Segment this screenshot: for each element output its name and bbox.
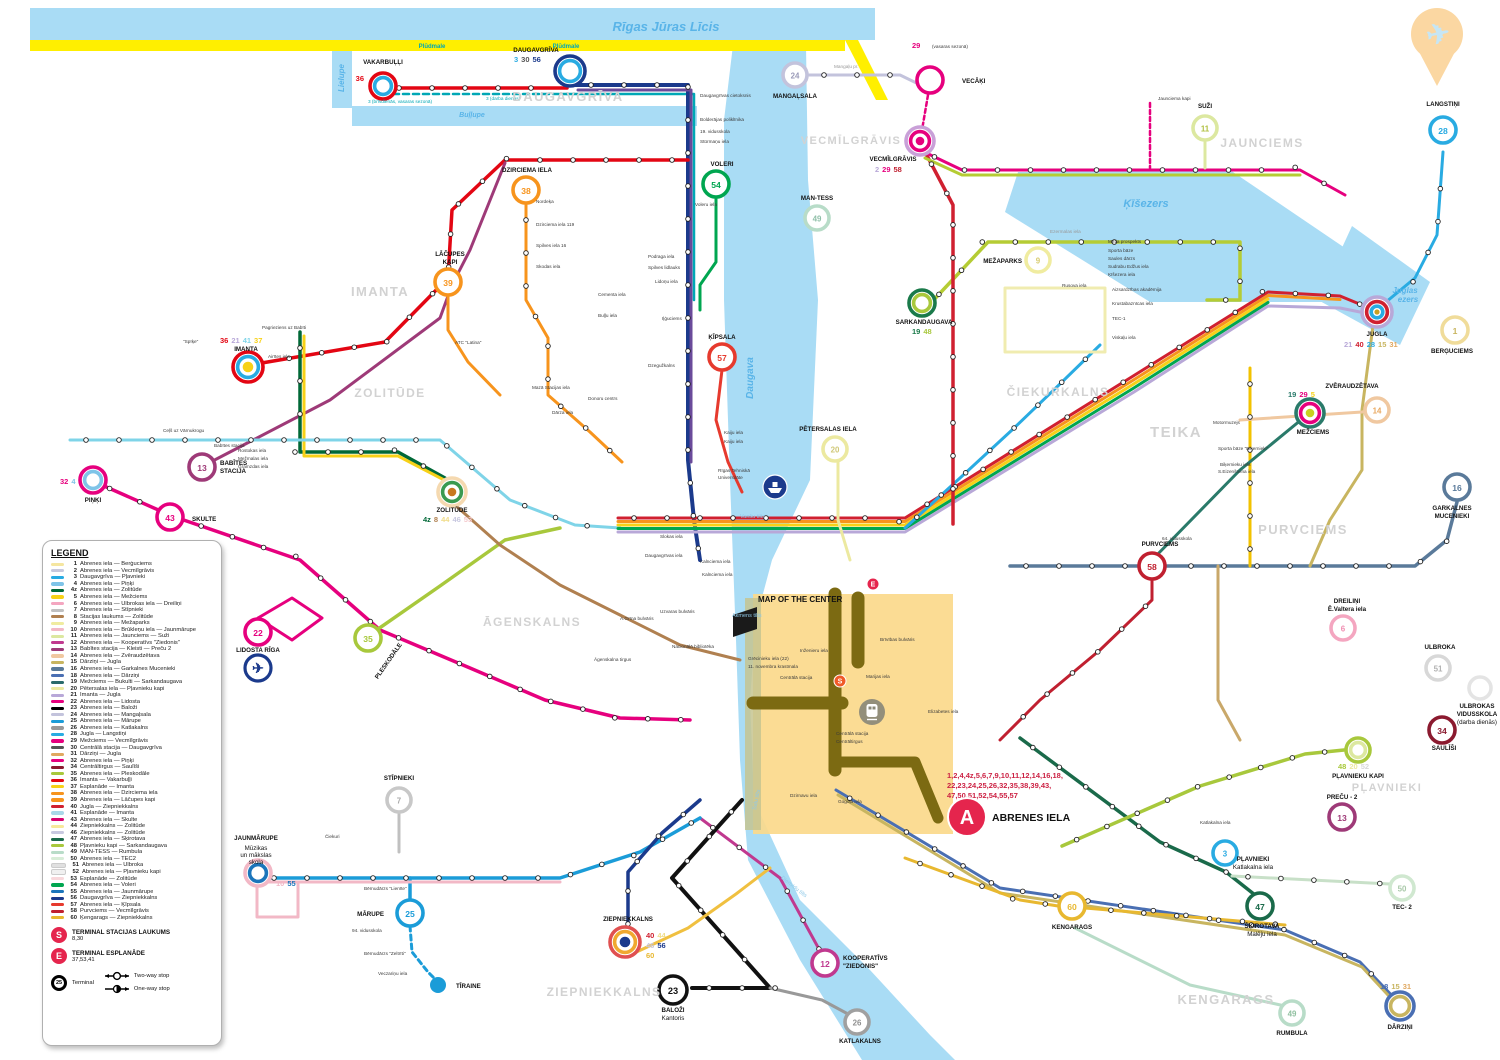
- route-number: 22: [67, 699, 77, 705]
- street-label: Podraga iela: [648, 254, 675, 259]
- terminal-route-numbers: 181531: [1380, 982, 1411, 991]
- stop-dot: [681, 812, 686, 817]
- route-color-swatch: [51, 694, 64, 697]
- route-color-swatch: [51, 916, 64, 919]
- route-line: [448, 296, 500, 395]
- stop-dot: [496, 86, 501, 91]
- stop-dot: [1012, 426, 1017, 431]
- train-station-icon: [859, 699, 885, 725]
- terminal-man-tess: 49MAN-TESS: [801, 195, 833, 230]
- stop-dot: [559, 404, 564, 409]
- stop-key-one-way: One-way stop: [104, 984, 170, 994]
- stop-dot: [1031, 745, 1036, 750]
- route-color-swatch: [51, 805, 64, 808]
- street-label: Āgenskalna tirgus: [594, 656, 632, 662]
- stop-dot: [546, 344, 551, 349]
- stop-dot: [1326, 293, 1331, 298]
- route-line: [700, 198, 716, 310]
- route-line: [905, 345, 1100, 528]
- stop-dot: [524, 218, 529, 223]
- route-number: 53: [67, 876, 77, 882]
- stop-dot: [600, 862, 605, 867]
- terminal-label: BALOŽI: [661, 1006, 684, 1014]
- stop-dot: [1074, 837, 1079, 842]
- route-number: 44: [67, 823, 77, 829]
- terminal-label: MUCENIEKI: [1435, 513, 1470, 520]
- terminal-route-numbers: 4044: [646, 931, 667, 940]
- route-label: Pētersalas iela — Pļavnieku kapi: [80, 686, 164, 692]
- stop-dot: [568, 872, 573, 877]
- street-label: Buļļu iela: [598, 313, 617, 318]
- route-number: 49: [67, 849, 77, 855]
- street-label: Dzirnavu iela: [790, 793, 817, 798]
- street-label: Viskaļu iela: [1112, 335, 1136, 340]
- train-station-icon: [869, 707, 872, 710]
- route-number: 38: [67, 790, 77, 796]
- stop-dot: [707, 834, 712, 839]
- stop-dot: [1037, 432, 1042, 437]
- route-color-swatch: [51, 759, 64, 762]
- route-line: [1062, 750, 1344, 846]
- route-label: Imanta — Jugla: [80, 692, 121, 698]
- route-label: Imanta — Vakarbuļļi: [80, 777, 132, 783]
- route-label: Abrenes iela — Lāčupes kapi: [80, 797, 155, 803]
- route-number: 32: [67, 758, 77, 764]
- terminal-label: MAN-TESS: [801, 195, 833, 202]
- street-label: Nordeķa: [536, 199, 554, 204]
- street-label: Kaiju iela: [724, 430, 743, 435]
- route-label: Centrāltirgus — Saulīši: [80, 764, 139, 770]
- stop-dot: [1246, 875, 1251, 880]
- stop-dot: [1222, 564, 1227, 569]
- street-label: Gogoļa iela: [838, 799, 862, 804]
- route-number: 9: [67, 620, 77, 626]
- stop-dot: [407, 315, 412, 320]
- stop-dot: [1322, 750, 1327, 755]
- route-number: 8: [67, 614, 77, 620]
- terminal-key-icon: 25: [51, 975, 67, 991]
- street-label: Nacionālā bibliotēka: [672, 644, 714, 649]
- stop-dot: [404, 876, 409, 881]
- street-label: Lidoņu iela: [655, 279, 678, 284]
- stop-dot: [945, 191, 950, 196]
- stop-dot: [1195, 784, 1200, 789]
- stop-dot: [822, 73, 827, 78]
- stop-dot: [1293, 165, 1298, 170]
- route-line: [1232, 876, 1390, 884]
- terminal-number: 58: [1147, 562, 1157, 572]
- route-label: Abrenes iela — Mangaļsala: [80, 712, 151, 718]
- route-color-swatch: [51, 877, 64, 880]
- route-number: 19: [67, 679, 77, 685]
- route-label: Abrenes iela — Mārupe: [80, 718, 141, 724]
- street-label: Pagrieziens uz Babīti: [262, 325, 306, 330]
- stop-dot: [988, 448, 993, 453]
- route-color-swatch: [51, 687, 64, 690]
- stop-dot: [686, 349, 691, 354]
- route-color-swatch: [51, 798, 64, 801]
- stop-dot: [1312, 940, 1317, 945]
- terminal-number: 35: [363, 634, 373, 644]
- stop-dot: [961, 864, 966, 869]
- route-number: 31: [67, 751, 77, 757]
- terminal-label: TEC- 2: [1392, 904, 1412, 911]
- terminal-marker-letter: E: [871, 581, 876, 588]
- stop-dot: [1061, 168, 1066, 173]
- terminal-label: SAULĪŠI: [1432, 744, 1457, 752]
- terminal-marupe: 25MĀRUPE: [357, 900, 423, 926]
- terminal-route-numbers: 22958: [875, 165, 902, 174]
- stop-dot: [1045, 692, 1050, 697]
- route-number: 7: [67, 607, 77, 613]
- route-number: 5: [67, 594, 77, 600]
- stop-dot: [1224, 870, 1229, 875]
- stop-dot: [230, 534, 235, 539]
- stop-dot: [989, 881, 994, 886]
- stop-dot: [929, 162, 934, 167]
- stop-dot: [980, 240, 985, 245]
- water-body: [352, 106, 697, 126]
- terminal-label: PIŅĶI: [85, 497, 102, 504]
- route-label: Pļavnieku kapi — Sarkandaugava: [80, 843, 167, 849]
- stop-dot: [904, 830, 909, 835]
- route-color-swatch: [51, 622, 64, 625]
- stop-dot: [1043, 902, 1048, 907]
- stop-dot: [546, 377, 551, 382]
- terminal-rumbula: 49RUMBULA: [1276, 1001, 1308, 1037]
- route-number: 40: [67, 804, 77, 810]
- two-way-stop-icon: [104, 971, 130, 981]
- stop-dot: [980, 884, 985, 889]
- terminal-marker-e: E: [867, 578, 879, 590]
- terminal-number: 1: [1453, 326, 1458, 336]
- stop-dot: [686, 316, 691, 321]
- terminal-label: JAUNMĀRUPE: [234, 835, 278, 842]
- terminal-e-title: TERMINAL ESPLANĀDE: [72, 950, 145, 957]
- stop-dot: [622, 83, 627, 88]
- route-label: Purvciems — Vecmīlgrāvis: [80, 908, 149, 914]
- stop-dot: [1121, 380, 1126, 385]
- route-color-swatch: [51, 582, 64, 585]
- stop-dot: [448, 232, 453, 237]
- stop-dot: [613, 716, 618, 721]
- terminal-label: BERĢUCIEMS: [1431, 348, 1473, 355]
- terminal-abrenes-iela: AABRENES IELA: [948, 798, 1071, 836]
- street-label: TEC-1: [1112, 316, 1126, 321]
- route-color-swatch: [51, 615, 64, 618]
- route-label: Abrenes iela — Ulbrokas iela — Dreiliņi: [80, 601, 182, 607]
- terminal-number: 9: [1036, 257, 1041, 266]
- terminal-ziepniekkalns: ZIEPNIEKKALNS4044465660: [603, 916, 666, 960]
- street-label: Ķīšezera iela: [1108, 272, 1135, 277]
- district-label: PĻAVNIEKI: [1352, 782, 1422, 794]
- terminal-label: PURVCIEMS: [1142, 541, 1179, 548]
- route-number: 6: [67, 601, 77, 607]
- terminal-label: SUŽI: [1198, 102, 1212, 110]
- stop-dot: [951, 289, 956, 294]
- stop-dot: [1053, 894, 1058, 899]
- stop-dot: [117, 438, 122, 443]
- street-label: Sporta bāze: [1108, 248, 1134, 253]
- route-color-swatch: [51, 681, 64, 684]
- terminal-label: un mākslas: [240, 852, 271, 859]
- stop-dot: [1248, 382, 1253, 387]
- route-number: 41: [67, 810, 77, 816]
- route-label: Abrenes iela — Lidosta: [80, 699, 140, 705]
- route-color-swatch: [51, 569, 64, 572]
- stop-dot: [150, 438, 155, 443]
- terminal-number: 54: [711, 180, 721, 190]
- terminal-number: 6: [1341, 625, 1346, 634]
- terminal-label: ZVĒRAUDZĒTAVA: [1325, 383, 1379, 390]
- water-body: [1005, 170, 1345, 302]
- street-label: Bērnudārzs "Lienīte": [364, 886, 407, 891]
- stop-dot: [660, 837, 665, 842]
- route-label: Stacijas laukums — Zolitūde: [80, 614, 153, 620]
- stop-dot: [518, 687, 523, 692]
- stop-dot: [1378, 881, 1383, 886]
- street-label: Kaiju iela: [724, 439, 743, 444]
- stop-dot: [1079, 240, 1084, 245]
- terminal-route-numbers: 29: [912, 41, 920, 50]
- terminal-berguciems: 1BERĢUCIEMS: [1431, 317, 1473, 355]
- terminal-center-dot: [620, 937, 631, 948]
- stop-dot: [1223, 298, 1228, 303]
- route-color-swatch: [51, 628, 64, 631]
- terminal-label: ULBROKA: [1425, 644, 1456, 651]
- terminal-route-numbers: 36: [356, 74, 364, 83]
- stop-dot: [604, 158, 609, 163]
- route-number: 11: [67, 633, 77, 639]
- stop-dot: [686, 250, 691, 255]
- route-color-swatch: [51, 818, 64, 821]
- water-label: Buļļupe: [459, 112, 485, 119]
- stop-dot: [294, 554, 299, 559]
- terminal-label: DZIRCIEMA IELA: [502, 167, 552, 174]
- stop-dot: [915, 515, 920, 520]
- stop-dot: [1342, 953, 1347, 958]
- route-color-swatch: [51, 609, 64, 612]
- stop-dot: [1238, 246, 1243, 251]
- water-body: [724, 45, 955, 1060]
- center-map-title: MAP OF THE CENTER: [758, 595, 843, 604]
- transit-map-canvas: ✈✈VAKARBUĻĻI36DAUGAVGRĪVA33056VECĀĶI2924…: [0, 0, 1500, 1060]
- street-label: ATC "Latina": [455, 340, 482, 345]
- route-label: MAN-TESS — Rumbula: [80, 849, 142, 855]
- stop-dot: [855, 73, 860, 78]
- terminal-number: 3: [1223, 850, 1228, 859]
- route-number: 16: [67, 666, 77, 672]
- terminal-number: 26: [853, 1019, 862, 1028]
- terminal-label: DREILIŅI: [1334, 598, 1361, 605]
- stop-dot: [1009, 450, 1014, 455]
- terminal-daugavgriva: DAUGAVGRĪVA33056: [513, 47, 585, 86]
- route-color-swatch: [51, 883, 64, 886]
- stop-dot: [84, 438, 89, 443]
- beach-stripe: [845, 40, 888, 100]
- street-label: Plūdmale: [553, 44, 580, 50]
- stop-dot: [665, 516, 670, 521]
- street-label: Slokas iela: [660, 534, 683, 539]
- stop-dot: [696, 546, 701, 551]
- stop-dot: [445, 444, 450, 449]
- stop-dot: [463, 86, 468, 91]
- district-label: ZOLITŪDE: [354, 386, 425, 400]
- district-label: ZIEPNIEKKALNS: [547, 985, 662, 999]
- terminal-tiraine: [430, 977, 446, 993]
- terminal-label: PĻAVNIEKU KAPI: [1332, 773, 1384, 780]
- terminal-label: JUGLA: [1367, 331, 1389, 338]
- street-label: Mazā Stacijas iela: [532, 385, 570, 390]
- terminal-label: Mūzikas: [245, 845, 268, 852]
- terminal-center-dot: [916, 137, 925, 146]
- legend-row: 60Ķengarags — Ziepniekkalns: [51, 915, 213, 922]
- stop-dot: [1357, 302, 1362, 307]
- route-color-swatch: [51, 910, 64, 913]
- route-color-swatch: [51, 779, 64, 782]
- stop-dot: [698, 516, 703, 521]
- stop-dot: [352, 345, 357, 350]
- stop-dot: [1238, 279, 1243, 284]
- stop-dot: [876, 813, 881, 818]
- route-label: Abrenes iela — Mežaparks: [80, 620, 150, 626]
- stop-dot: [932, 847, 937, 852]
- terminal-label: "ZIEDONIS": [843, 963, 878, 970]
- terminal-number: 47: [1255, 902, 1265, 912]
- stop-dot: [503, 876, 508, 881]
- route-color-swatch: [51, 713, 64, 716]
- terminal-skirotava: 47ŠĶIROTAVAMalēju iela: [1244, 893, 1280, 938]
- terminal-label: Malēju iela: [1247, 931, 1277, 938]
- stop-dot: [1444, 539, 1449, 544]
- route-label: Abrenes iela — Garkalnes Mucenieki: [80, 666, 175, 672]
- stop-dot: [742, 957, 747, 962]
- route-color-swatch: [51, 726, 64, 729]
- terminal-suzi: 11SUŽI: [1193, 102, 1217, 140]
- terminal-number: 12: [820, 959, 830, 969]
- terminal-number: 16: [1452, 483, 1462, 493]
- street-label: Motormuzejs: [1213, 420, 1240, 425]
- terminal-label: STACIJA: [220, 468, 247, 475]
- route-color-swatch: [51, 667, 64, 670]
- street-label: Biķernieku iela: [1220, 462, 1251, 467]
- terminal-precu-2: 13PREČU - 2: [1327, 794, 1358, 830]
- stop-dot: [763, 865, 768, 870]
- stop-dot: [963, 470, 968, 475]
- street-label: 64. vidusskola: [1162, 536, 1192, 541]
- stop-dot: [1194, 856, 1199, 861]
- stop-dot: [1028, 168, 1033, 173]
- route-color-swatch: [51, 766, 64, 769]
- stop-dot: [1248, 415, 1253, 420]
- route-number: 24: [67, 712, 77, 718]
- route-number: 34: [67, 764, 77, 770]
- route-label: Jugla — Langstiņi: [80, 731, 126, 737]
- stop-dot: [487, 674, 492, 679]
- stop-dot: [396, 636, 401, 641]
- stop-dot: [318, 576, 323, 581]
- street-label: 94. vidusskola: [352, 928, 382, 933]
- terminal-label: STĪPNIEKI: [384, 775, 415, 782]
- terminal-marker-s: S: [834, 675, 846, 687]
- terminal-label: MANGAĻSALA: [773, 93, 818, 100]
- terminal-label: MĀRUPE: [357, 911, 384, 918]
- terminal-route-numbers: 33056: [514, 55, 541, 64]
- street-label: Rusova iela: [1062, 283, 1087, 288]
- route-line: [1005, 288, 1105, 352]
- terminal-number: 57: [717, 353, 727, 363]
- stop-dot: [1046, 240, 1051, 245]
- terminal-label: LIDOSTA RĪGA: [236, 647, 280, 654]
- route-label: Babītes stacija — Kleisti — Preču 2: [80, 646, 171, 652]
- route-color-swatch: [51, 720, 64, 723]
- terminal-label: KENGARAGS: [1052, 924, 1092, 931]
- street-label: Sporta bāze "Biķernieki": [1218, 446, 1269, 451]
- street-label: Bērnudārzs "Zeltrīti": [364, 951, 406, 956]
- stop-dot: [437, 876, 442, 881]
- legend-row: 10Abrenes iela — Brūkleņu iela — Jaunmār…: [51, 626, 213, 633]
- terminal-s-badge: S: [51, 927, 67, 943]
- street-label: Grēcinieku iela (22): [748, 656, 789, 661]
- stop-dot: [319, 350, 324, 355]
- stop-dot: [773, 986, 778, 991]
- street-label: Aizsardzības akadēmija: [1112, 287, 1162, 292]
- route-color-swatch: [51, 903, 64, 906]
- route-line: [1218, 566, 1240, 740]
- route-color-swatch: [51, 863, 66, 868]
- route-color-swatch: [51, 838, 64, 841]
- route-label: Jugla — Ziepniekkalns: [80, 804, 138, 810]
- stop-dot: [729, 810, 734, 815]
- route-line: [410, 926, 438, 982]
- route-label: Centrālā stacija — Daugavgrīva: [80, 745, 162, 751]
- stop-dot: [678, 717, 683, 722]
- terminal-label: VECMĪLGRĀVIS: [869, 156, 916, 163]
- stop-dot: [635, 859, 640, 864]
- terminal-number: 28: [1438, 126, 1448, 136]
- route-number: 51: [69, 862, 79, 868]
- route-number: 23: [67, 705, 77, 711]
- stop-dot: [1137, 824, 1142, 829]
- district-label: TEIKA: [1150, 424, 1202, 441]
- terminal-kipsala: 57ĶĪPSALA: [708, 334, 736, 370]
- district-label: IMANTA: [351, 284, 409, 299]
- route-line: [838, 462, 850, 560]
- terminal-label: Ē.Valtera iela: [1328, 606, 1367, 613]
- stop-dot: [801, 918, 806, 923]
- route-number: 1: [67, 561, 77, 567]
- legend-title: LEGEND: [51, 548, 213, 558]
- terminal-number: 22: [253, 628, 263, 638]
- street-label: Gramzdas iela: [238, 464, 269, 469]
- route-color-swatch: [51, 648, 64, 651]
- terminal-key-label: Terminal: [72, 980, 94, 986]
- stop-dot: [962, 168, 967, 173]
- terminal-number: 13: [197, 463, 207, 473]
- stop-dot: [504, 156, 509, 161]
- street-label: Rostokas iela: [238, 448, 267, 453]
- stop-dot: [583, 426, 588, 431]
- stop-dot: [1345, 880, 1350, 885]
- stop-dot: [686, 85, 691, 90]
- terminal-number: 38: [521, 186, 531, 196]
- stop-dot: [686, 118, 691, 123]
- terminal-route-numbers: 324: [60, 477, 76, 486]
- terminal-ulbrokas-vidusskola: ULBROKASVIDUSSKOLA(darba dienās): [1457, 677, 1498, 726]
- route-color-swatch: [51, 825, 64, 828]
- route-label: Abrenes iela — Mežciems: [80, 594, 147, 600]
- route-line: [304, 336, 448, 482]
